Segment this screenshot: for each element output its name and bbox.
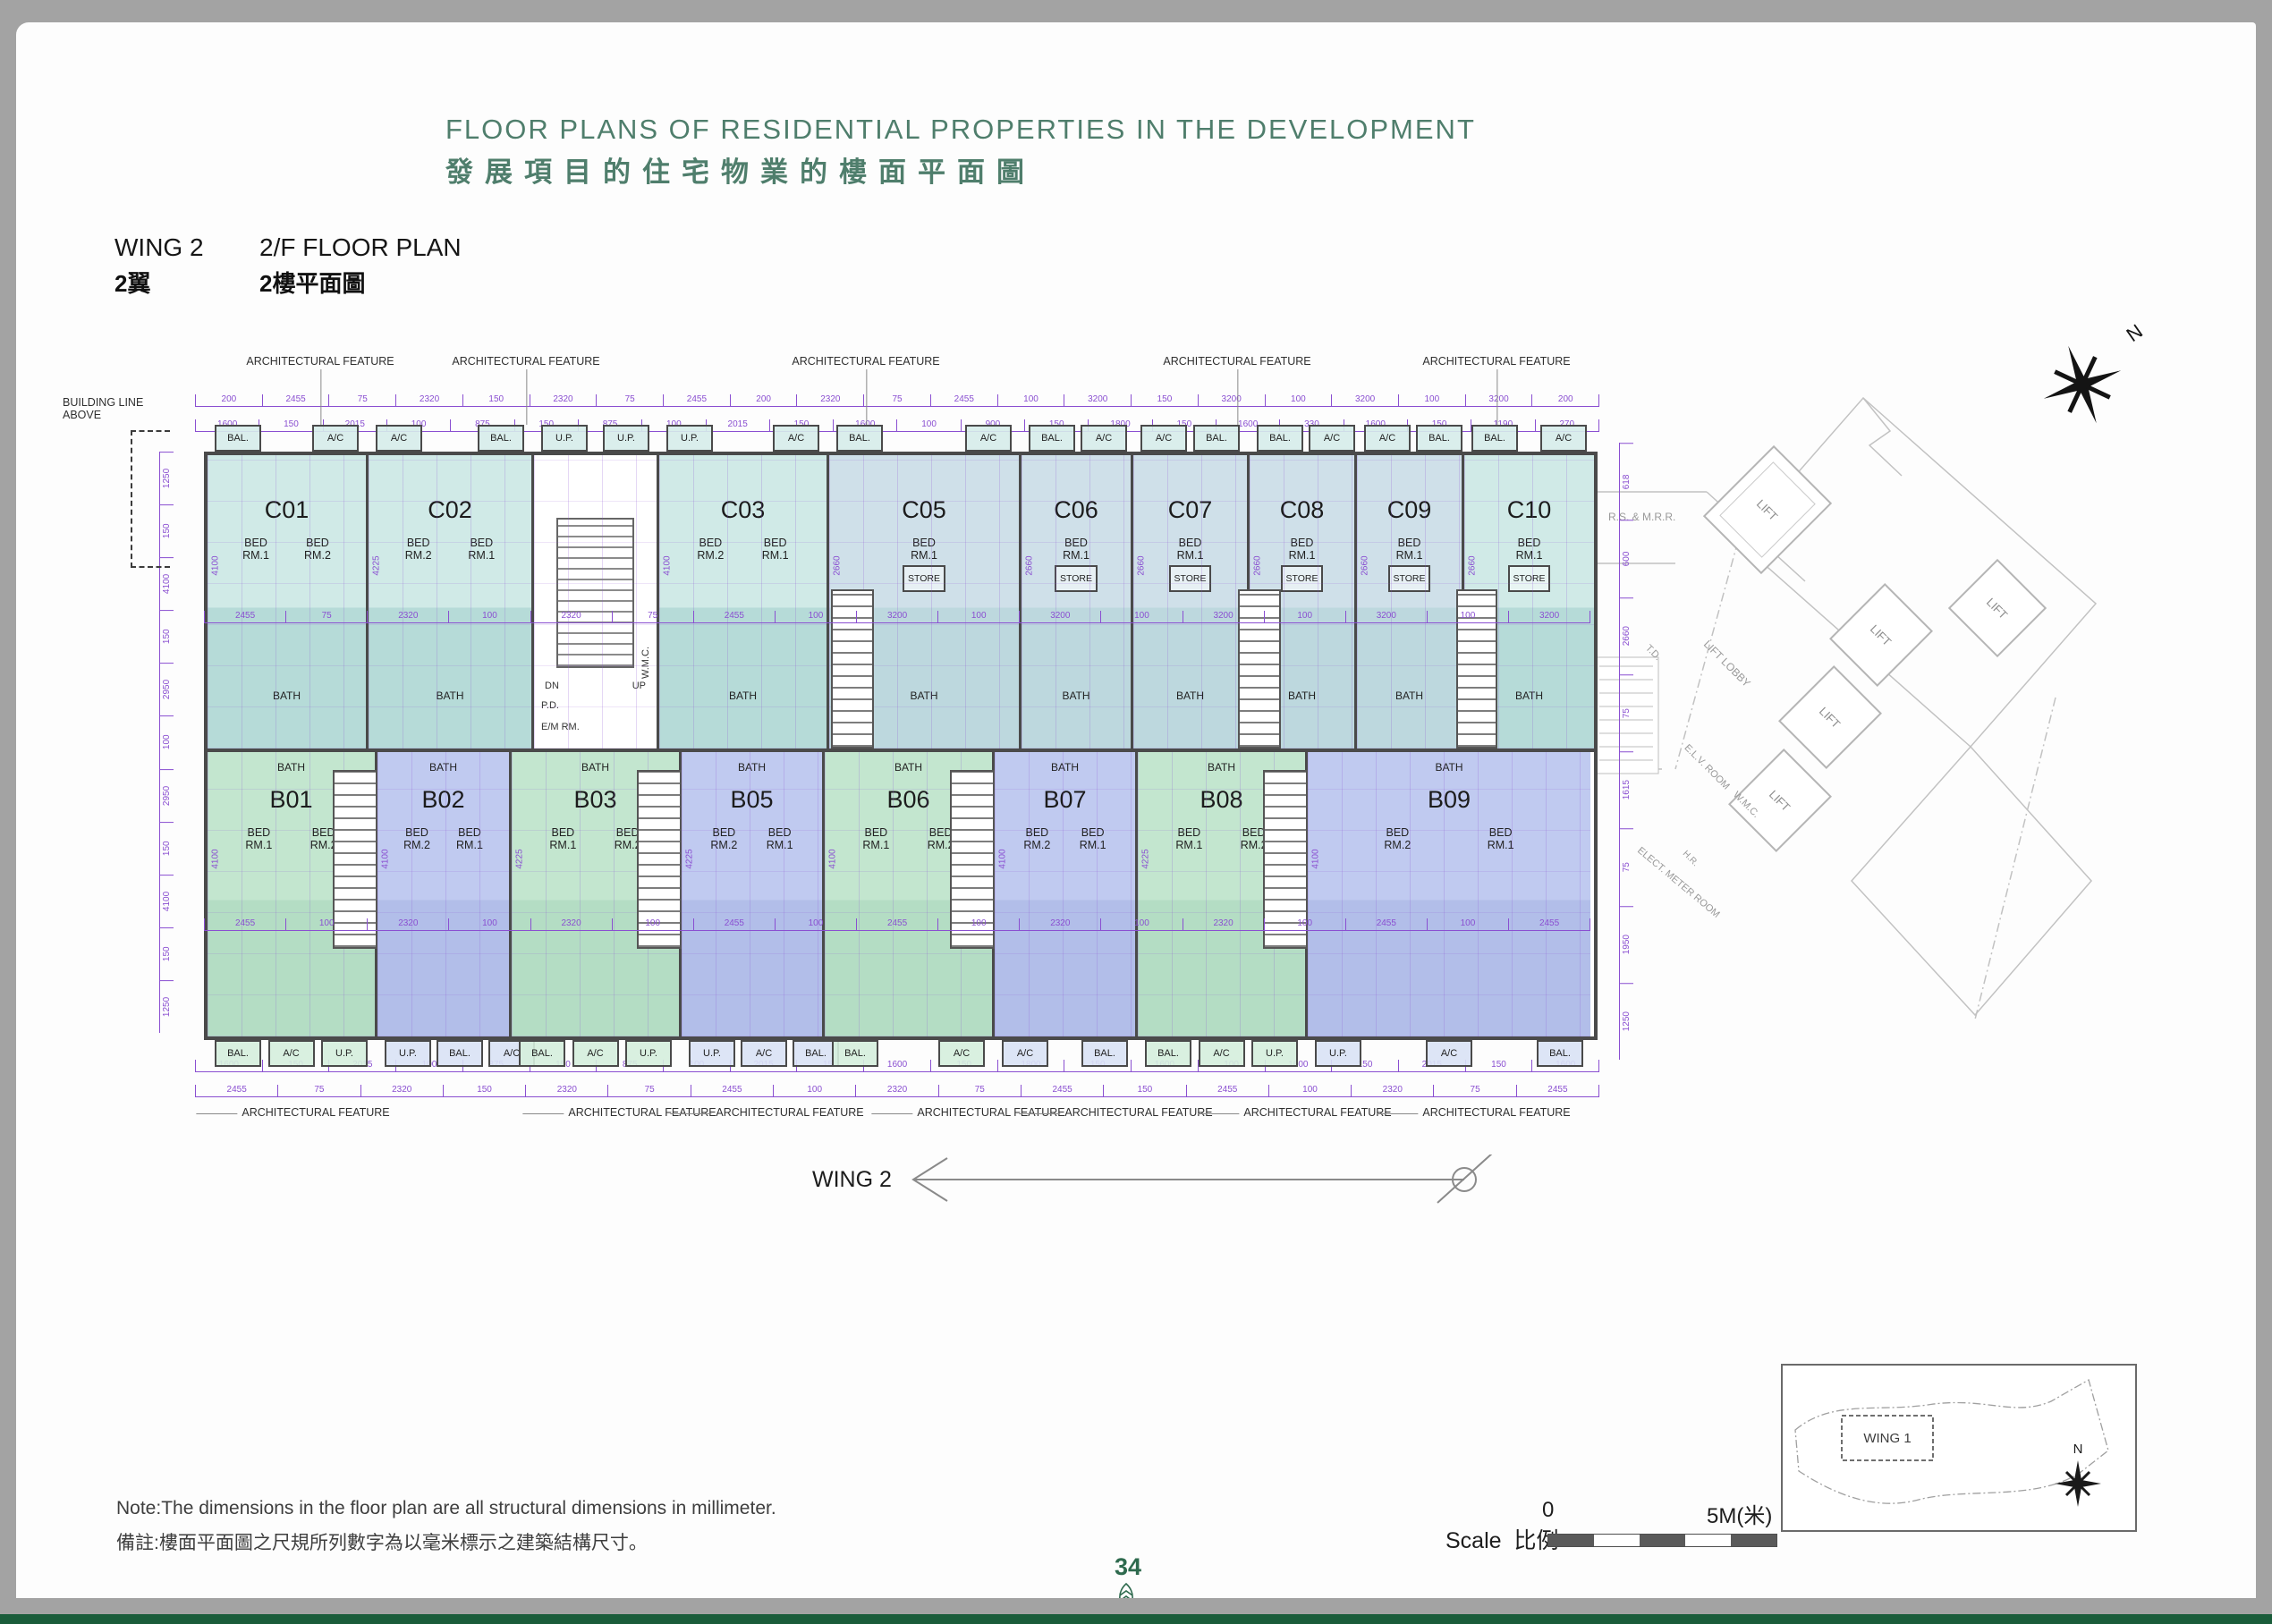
utility-platform-tab: U.P. (1251, 1040, 1298, 1067)
keyplan-north-star: N (2055, 1442, 2101, 1507)
dimension-figure: 3200 (1331, 394, 1398, 406)
bath-room-label: BATH (369, 689, 531, 702)
dimension-figure: 2455 (204, 611, 285, 622)
dimension-figure: 75 (285, 611, 367, 622)
building-line-above-label: BUILDING LINE ABOVE (63, 396, 145, 421)
ac-platform-tab: A/C (1540, 425, 1587, 452)
dimension-figure: 200 (1531, 394, 1599, 406)
dim-strip-interior-b: 2455100232010023201002455100245510023201… (204, 918, 1590, 931)
dimension-figure: 2455 (693, 918, 775, 930)
architectural-feature-label: ARCHITECTURAL FEATURE (242, 1106, 389, 1119)
dimension-figure: 150 (1131, 394, 1198, 406)
bedroom-label: BED RM.1 (1516, 537, 1543, 562)
stair-dn-label: DN (545, 681, 559, 691)
edge-tab-row: U.P.U.P. (541, 425, 649, 452)
bedroom-label: BED RM.1 (1175, 826, 1202, 851)
store-room-label: STORE (1508, 565, 1551, 592)
bath-room-label: BATH (1308, 761, 1590, 774)
bath-room-label: BATH (208, 689, 366, 702)
dimension-figure: 75 (863, 394, 930, 406)
dimension-figure: 2320 (395, 394, 462, 406)
architectural-feature-label: ARCHITECTURAL FEATURE (1422, 1106, 1570, 1119)
dim-strip-right: 61860026607516157519501250 (1619, 443, 1633, 1060)
bedroom-label: BED RM.2 (403, 826, 430, 851)
footer-green-band (0, 1614, 2272, 1624)
unit-C03: U.P.A/CC03BED RM.2BED RM.1BATH4100 (659, 455, 829, 749)
dimension-figure: 3200 (1019, 611, 1100, 622)
bath-room-label: BATH (682, 761, 822, 774)
dimension-figure: 4100 (1311, 850, 1321, 869)
em-room-label: E/M RM. (541, 722, 580, 732)
leader-line (526, 369, 527, 425)
edge-tab-row: A/CBAL. (1140, 425, 1240, 452)
dimension-figure: 4100 (998, 850, 1008, 869)
dimension-figure: 2455 (1186, 1085, 1268, 1096)
store-room-label: STORE (1055, 565, 1098, 592)
leader-line (871, 1113, 912, 1114)
bedroom-label: BED RM.1 (1396, 537, 1423, 562)
balcony-tab: BAL. (215, 425, 261, 452)
edge-tab-row: BAL.A/C (1029, 425, 1123, 452)
dimension-figure: 4100 (211, 850, 221, 869)
dimension-figure: 100 (1100, 918, 1182, 930)
utility-platform-tab: U.P. (689, 1040, 735, 1067)
unit-C09: A/CBAL.C09BED RM.1STOREBATH2660 (1357, 455, 1464, 749)
dimension-figure: 2660 (1468, 555, 1478, 575)
dimension-figure: 2455 (1021, 1085, 1103, 1096)
bedroom-label: BED RM.1 (1177, 537, 1204, 562)
dimension-figure: 600 (1620, 520, 1633, 596)
balcony-tab: BAL. (1257, 425, 1303, 452)
dimension-figure: 100 (1265, 394, 1332, 406)
dimension-figure: 2320 (855, 1085, 937, 1096)
elv-room-label: E.L.V. ROOM (1682, 742, 1731, 791)
dimension-figure: 1950 (1620, 906, 1633, 983)
dimension-figure: 150 (443, 1085, 525, 1096)
stair-up-label: UP (632, 681, 646, 691)
dimension-figure: 3200 (1064, 394, 1131, 406)
ac-platform-tab: A/C (1364, 425, 1411, 452)
ac-platform-tab: A/C (572, 1040, 619, 1067)
balcony-tab: BAL. (1471, 425, 1518, 452)
leader-line (1237, 369, 1238, 425)
dimension-figure: 200 (195, 394, 262, 406)
unit-C06: BAL.A/CC06BED RM.1STOREBATH2660 (1022, 455, 1133, 749)
ac-platform-tab: A/C (268, 1040, 315, 1067)
room-labels: BED RM.1STORE (1464, 537, 1594, 592)
ac-platform-tab: A/C (1426, 1040, 1472, 1067)
utility-platform-tab: U.P. (625, 1040, 672, 1067)
dimension-figure: 3200 (1465, 394, 1532, 406)
wing-label-chinese: 2翼 (114, 266, 150, 299)
floor-label: 2/F FLOOR PLAN (259, 233, 462, 262)
dimension-figure: 2660 (1361, 555, 1370, 575)
dim-strip-interior-c: 2455752320100232075245510032001003200100… (204, 611, 1590, 623)
dimension-figure: 2660 (1620, 597, 1633, 674)
utility-platform-tab: U.P. (385, 1040, 431, 1067)
balcony-tab: BAL. (1416, 425, 1462, 452)
lift-lobby-label: LIFT LOBBY (1701, 638, 1753, 689)
room-labels: BED RM.1STORE (1133, 537, 1247, 592)
ac-platform-tab: A/C (938, 1040, 985, 1067)
stair-hatch (556, 518, 635, 668)
balcony-tab: BAL. (832, 1040, 878, 1067)
dimension-figure: 3200 (856, 611, 937, 622)
balcony-tab: BAL. (1145, 1040, 1191, 1067)
dimension-figure: 100 (937, 918, 1019, 930)
bedroom-label: BED RM.1 (911, 537, 937, 562)
pd-label: P.D. (541, 700, 559, 711)
wing-label: WING 2 (114, 233, 204, 262)
dimension-figure: 100 (448, 918, 530, 930)
edge-tab-row: U.P.BAL.A/C (385, 1040, 502, 1067)
dimension-figure: 3200 (1345, 611, 1427, 622)
architectural-feature-label: ARCHITECTURAL FEATURE (1064, 1106, 1212, 1119)
edge-tab-row: BAL.A/C (1471, 425, 1587, 452)
bedroom-label: BED RM.1 (1080, 826, 1106, 851)
balcony-tab: BAL. (215, 1040, 261, 1067)
unit-label: B07 (995, 786, 1135, 814)
unit-C02: A/CBAL.C02BED RM.2BED RM.1BATH4225 (369, 455, 534, 749)
balcony-tab: BAL. (437, 1040, 483, 1067)
dimension-figure: 1250 (160, 980, 174, 1033)
balcony-tab: BAL. (836, 425, 883, 452)
ac-platform-tab: A/C (1081, 425, 1127, 452)
bedroom-label: BED RM.1 (862, 826, 889, 851)
brochure-page: FLOOR PLANS OF RESIDENTIAL PROPERTIES IN… (16, 22, 2256, 1598)
leader-line (670, 1113, 711, 1114)
store-room-label: STORE (903, 565, 945, 592)
bedroom-label: BED RM.2 (697, 537, 724, 562)
edge-tab-row: BAL.A/C (832, 1040, 985, 1067)
keyplan-wing-label: WING 1 (1863, 1431, 1911, 1446)
page-canvas: FLOOR PLANS OF RESIDENTIAL PROPERTIES IN… (0, 0, 2272, 1624)
scale-bar (1547, 1534, 1777, 1547)
dimension-figure: 4100 (663, 555, 673, 575)
dimension-figure: 75 (1433, 1085, 1515, 1096)
leader-line (1019, 1113, 1060, 1114)
unit-label: C06 (1022, 496, 1131, 524)
architectural-feature-label: ARCHITECTURAL FEATURE (246, 355, 394, 368)
room-labels: BED RM.2BED RM.1 (377, 826, 509, 851)
dimension-figure: 100 (1427, 918, 1508, 930)
ac-platform-tab: A/C (1140, 425, 1187, 452)
scale-zero: 0 (1542, 1498, 1554, 1523)
dimension-figure: 100 (1100, 611, 1182, 622)
bedroom-label: BED RM.2 (1023, 826, 1050, 851)
bedroom-label: BED RM.1 (456, 826, 483, 851)
dimension-figure: 100 (612, 918, 693, 930)
dimension-figure: 100 (1268, 1085, 1351, 1096)
central-stair-core: U.P.U.P.DNUPP.D.E/M RM.W.M.C. (534, 455, 659, 749)
svg-text:N: N (2073, 1442, 2083, 1457)
floor-plan: LIFT LIFT LIFT LIFT LIFT R. (52, 344, 2100, 1154)
balcony-tab: BAL. (478, 425, 524, 452)
bath-room-label: BATH (995, 761, 1135, 774)
dimension-figure: 3200 (1183, 611, 1264, 622)
dimension-figure: 150 (1103, 1085, 1185, 1096)
dimension-figure: 2320 (530, 394, 597, 406)
dimension-figure: 2660 (833, 555, 843, 575)
dimension-figure: 1615 (1620, 751, 1633, 828)
building-line-dashed (131, 430, 170, 568)
dimension-figure: 2455 (204, 918, 285, 930)
dimension-figure: 4100 (211, 555, 221, 575)
dimension-figure: 2320 (530, 918, 612, 930)
unit-label: C09 (1357, 496, 1462, 524)
building-outline: BAL.A/CC01BED RM.1BED RM.2BATH4100A/CBAL… (204, 452, 1598, 1040)
ac-platform-tab: A/C (376, 425, 422, 452)
dimension-figure: 4100 (381, 850, 391, 869)
dimension-figure: 150 (160, 610, 174, 663)
ac-platform-tab: A/C (1309, 425, 1355, 452)
bedroom-label: BED RM.1 (549, 826, 576, 851)
room-labels: BED RM.1STORE (1250, 537, 1354, 592)
dimension-figure: 2455 (262, 394, 329, 406)
dimension-figure: 2455 (856, 918, 937, 930)
unit-label: C07 (1133, 496, 1247, 524)
north-compass: N (2039, 317, 2174, 434)
bath-room-label: BATH (1357, 689, 1462, 702)
utility-platform-tab: U.P. (1315, 1040, 1361, 1067)
leader-line (320, 369, 321, 425)
balcony-tab: BAL. (1029, 425, 1075, 452)
dimension-figure: 4225 (1141, 850, 1151, 869)
dimension-figure: 2320 (525, 1085, 607, 1096)
dimension-figure: 2455 (693, 611, 775, 622)
dimension-figure: 2660 (1253, 555, 1263, 575)
store-room-label: STORE (1281, 565, 1324, 592)
unit-row-b: BAL.A/CU.P.B01BED RM.1BED RM.2BATH4100U.… (208, 752, 1594, 1036)
scale-label: Scale 比例 (1445, 1523, 1558, 1555)
balcony-tab: BAL. (1081, 1040, 1128, 1067)
room-labels: BED RM.1BED RM.2 (208, 537, 366, 562)
unit-B07: A/CBAL.B07BED RM.2BED RM.1BATH4100 (995, 752, 1138, 1036)
dimension-figure: 2950 (160, 769, 174, 822)
utility-platform-tab: U.P. (321, 1040, 368, 1067)
page-title-chinese: 發展項目的住宅物業的樓面平面圖 (445, 149, 1036, 190)
edge-tab-row: BAL.A/CU.P. (1145, 1040, 1298, 1067)
dimension-figure: 100 (773, 1085, 855, 1096)
dimension-figure: 2320 (530, 611, 612, 622)
dimension-figure: 100 (775, 918, 856, 930)
dimension-figure: 2320 (1019, 918, 1100, 930)
dimension-figure: 100 (1264, 918, 1345, 930)
leader-line (522, 1113, 564, 1114)
balcony-tab: BAL. (1537, 1040, 1583, 1067)
unit-C01: BAL.A/CC01BED RM.1BED RM.2BATH4100 (208, 455, 369, 749)
bath-room-label: BATH (1022, 689, 1131, 702)
unit-B05: U.P.A/CBAL.B05BED RM.2BED RM.1BATH4225 (682, 752, 825, 1036)
unit-B09: U.P.A/CBAL.B09BED RM.2BED RM.1BATH4100 (1308, 752, 1590, 1036)
room-labels: BED RM.1STORE (829, 537, 1019, 592)
dimension-figure: 200 (730, 394, 797, 406)
dimension-figure: 2455 (930, 394, 997, 406)
room-labels: BED RM.2BED RM.1 (995, 826, 1135, 851)
note-chinese: 備註:樓面平面圖之尺規所列數字為以毫米標示之建築結構尺寸。 (116, 1528, 648, 1555)
leaf-icon (1115, 1583, 1138, 1598)
unit-label: C01 (208, 496, 366, 524)
edge-tab-row: BAL.A/CU.P. (519, 1040, 672, 1067)
leader-line (1198, 1113, 1239, 1114)
leader-line (1377, 1113, 1418, 1114)
edge-tab-row: A/CBAL. (376, 425, 524, 452)
common-area-plan: LIFT LIFT LIFT LIFT LIFT R. (1590, 393, 2105, 1073)
leader-line (1496, 369, 1497, 425)
edge-tab-row: U.P.A/C (666, 425, 819, 452)
page-number: 34 (1101, 1553, 1155, 1581)
unit-label: B09 (1308, 786, 1590, 814)
hr-label: H.R. (1681, 849, 1700, 868)
dimension-figure: 100 (448, 611, 530, 622)
wmc-label: W.M.C. (640, 647, 651, 679)
bedroom-label: BED RM.1 (762, 537, 789, 562)
bedroom-label: BED RM.2 (304, 537, 331, 562)
architectural-feature-label: ARCHITECTURAL FEATURE (1243, 1106, 1391, 1119)
dimension-figure: 100 (997, 394, 1064, 406)
dimension-figure: 1250 (1620, 983, 1633, 1060)
architectural-feature-label: ARCHITECTURAL FEATURE (917, 1106, 1064, 1119)
room-labels: BED RM.2BED RM.1 (369, 537, 531, 562)
dimension-figure: 2455 (195, 1085, 277, 1096)
edge-tab-row: A/CBAL. (1002, 1040, 1128, 1067)
dimension-figure: 75 (938, 1085, 1021, 1096)
dim-strip-top-outer: 2002455752320150232075245520023207524551… (195, 394, 1599, 407)
store-room-label: STORE (1169, 565, 1212, 592)
bedroom-label: BED RM.2 (1384, 826, 1411, 851)
dim-strip-bottom-outer: 2455752320150232075245510023207524551502… (195, 1085, 1599, 1097)
dimension-figure: 150 (160, 927, 174, 980)
dimension-figure: 75 (328, 394, 395, 406)
architectural-feature-label: ARCHITECTURAL FEATURE (716, 1106, 863, 1119)
dimension-figure: 100 (937, 611, 1019, 622)
dimension-figure: 75 (1620, 828, 1633, 905)
dimension-figure: 2660 (1137, 555, 1147, 575)
unit-B02: U.P.BAL.A/CB02BED RM.2BED RM.1BATH4100 (377, 752, 512, 1036)
utility-platform-tab: U.P. (666, 425, 713, 452)
bath-room-label: BATH (1133, 689, 1247, 702)
dimension-figure: 100 (775, 611, 856, 622)
edge-tab-row: BAL.A/C (1257, 425, 1347, 452)
bedroom-label: BED RM.1 (1488, 826, 1514, 851)
note-english: Note:The dimensions in the floor plan ar… (116, 1498, 776, 1519)
dimension-figure: 2320 (367, 918, 448, 930)
ac-platform-tab: A/C (965, 425, 1012, 452)
bedroom-label: BED RM.2 (710, 826, 737, 851)
ac-platform-tab: A/C (1199, 1040, 1245, 1067)
dimension-figure: 75 (277, 1085, 360, 1096)
balcony-tab: BAL. (1193, 425, 1240, 452)
bedroom-label: BED RM.1 (242, 537, 269, 562)
leader-line (866, 369, 867, 425)
unit-label: C05 (829, 496, 1019, 524)
arrow-graphic (901, 1155, 1509, 1205)
dimension-figure: 2455 (1516, 1085, 1599, 1096)
dimension-figure: 100 (1427, 611, 1508, 622)
architectural-feature-label: ARCHITECTURAL FEATURE (1422, 355, 1570, 368)
dimension-figure: 3200 (1508, 611, 1590, 622)
dimension-figure: 150 (462, 394, 530, 406)
ac-platform-tab: A/C (312, 425, 359, 452)
room-labels: BED RM.2BED RM.1 (659, 537, 827, 562)
unit-label: C03 (659, 496, 827, 524)
wing-direction-arrow: WING 2 (812, 1155, 1509, 1205)
unit-label: B02 (377, 786, 509, 814)
dimension-figure: 75 (607, 1085, 690, 1096)
utility-platform-tab: U.P. (603, 425, 649, 452)
unit-label: C10 (1464, 496, 1594, 524)
edge-tab-row: A/CBAL. (1364, 425, 1454, 452)
dimension-figure: 2455 (1345, 918, 1427, 930)
architectural-feature-label: ARCHITECTURAL FEATURE (792, 355, 939, 368)
dimension-figure: 150 (160, 822, 174, 875)
bedroom-label: BED RM.1 (1289, 537, 1316, 562)
dimension-figure: 2320 (1351, 1085, 1433, 1096)
room-labels: BED RM.1STORE (1022, 537, 1131, 592)
dimension-figure: 2320 (796, 394, 863, 406)
dimension-figure: 4225 (515, 850, 525, 869)
bath-room-label: BATH (377, 761, 509, 774)
compass-north-label: N (2123, 320, 2147, 347)
dimension-figure: 4100 (160, 875, 174, 927)
dimension-figure: 75 (612, 611, 693, 622)
dimension-figure: 4225 (685, 850, 695, 869)
ac-platform-tab: A/C (1002, 1040, 1048, 1067)
bedroom-label: BED RM.1 (1063, 537, 1089, 562)
utility-platform-tab: U.P. (541, 425, 588, 452)
dimension-figure: 4100 (828, 850, 838, 869)
bedroom-label: BED RM.1 (468, 537, 495, 562)
architectural-feature-label: ARCHITECTURAL FEATURE (1163, 355, 1310, 368)
room-labels: BED RM.2BED RM.1 (682, 826, 822, 851)
dimension-figure: 2455 (1508, 918, 1590, 930)
dimension-figure: 75 (1620, 674, 1633, 751)
edge-tab-row: BAL.A/C (836, 425, 1012, 452)
floor-label-chinese: 2樓平面圖 (259, 266, 365, 299)
unit-label: C08 (1250, 496, 1354, 524)
dimension-figure: 75 (596, 394, 663, 406)
architectural-feature-label: ARCHITECTURAL FEATURE (452, 355, 599, 368)
dimension-figure: 2320 (1183, 918, 1264, 930)
page-title: FLOOR PLANS OF RESIDENTIAL PROPERTIES IN… (445, 114, 1476, 146)
bedroom-label: BED RM.2 (405, 537, 432, 562)
bedroom-label: BED RM.1 (245, 826, 272, 851)
wing-arrow-label: WING 2 (812, 1167, 892, 1193)
room-labels: BED RM.1STORE (1357, 537, 1462, 592)
scale-max: 5M(米) (1707, 1498, 1772, 1529)
elect-meter-room-label: ELECT. METER ROOM (1635, 845, 1722, 920)
dimension-figure: 2950 (160, 663, 174, 715)
dimension-figure: 4225 (372, 555, 382, 575)
bath-room-label: BATH (659, 689, 827, 702)
dimension-figure: 100 (285, 918, 367, 930)
edge-tab-row: U.P.A/CBAL. (689, 1040, 815, 1067)
dimension-figure: 2455 (663, 394, 730, 406)
dimension-figure: 618 (1620, 443, 1633, 520)
room-labels: BED RM.2BED RM.1 (1308, 826, 1590, 851)
unit-C07: A/CBAL.C07BED RM.1STOREBATH2660 (1133, 455, 1250, 749)
dimension-figure: 2455 (691, 1085, 773, 1096)
architectural-feature-label: ARCHITECTURAL FEATURE (568, 1106, 716, 1119)
dimension-figure: 100 (1398, 394, 1465, 406)
ac-platform-tab: A/C (741, 1040, 787, 1067)
unit-row-c: BAL.A/CC01BED RM.1BED RM.2BATH4100A/CBAL… (208, 455, 1594, 752)
unit-label: C02 (369, 496, 531, 524)
bedroom-label: BED RM.1 (767, 826, 793, 851)
dimension-figure: 100 (1264, 611, 1345, 622)
dimension-figure: 100 (160, 715, 174, 768)
dimension-figure: 2320 (367, 611, 448, 622)
